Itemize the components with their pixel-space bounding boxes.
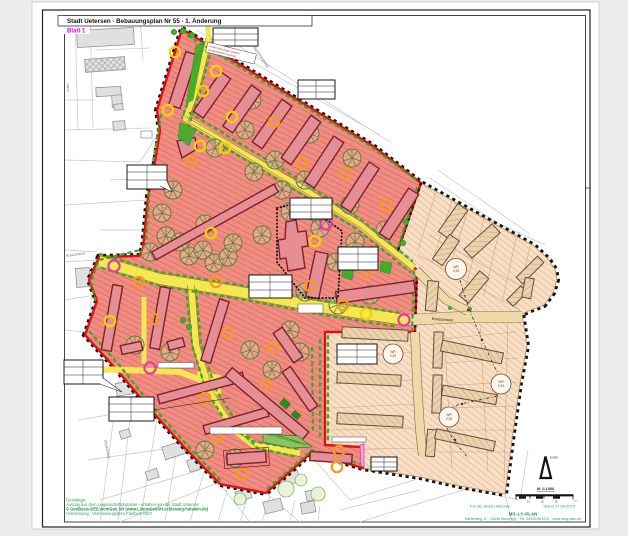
svg-text:0,35: 0,35 [446,417,452,421]
svg-text:NORD: NORD [550,456,558,460]
svg-text:0,35: 0,35 [453,269,459,273]
svg-text:Gartenweg 11 · 25436 Moorrege: Gartenweg 11 · 25436 Moorrege · Tel. 041… [465,517,582,521]
svg-text:Für die Stadt Uetersen: Für die Stadt Uetersen [470,504,510,509]
svg-text:Vermessung : Vermessungsbüro F: Vermessung : Vermessungsbüro Fahlbert Öb… [66,511,152,516]
svg-text:MS.-LY.-PLAN: MS.-LY.-PLAN [509,512,538,517]
svg-text:Luke: Luke [65,83,70,92]
svg-text:Stand 17.04.2023: Stand 17.04.2023 [543,504,575,509]
svg-text:m: m [575,500,577,503]
svg-text:0,35: 0,35 [390,354,396,358]
svg-text:0,35: 0,35 [498,384,504,388]
svg-text:Stadt Uetersen - Bebauungsplan: Stadt Uetersen - Bebauungsplan Nr 55 - 1… [67,18,222,25]
svg-text:M. 1:1.000: M. 1:1.000 [537,487,554,491]
svg-text:Blatt 1: Blatt 1 [67,28,86,34]
